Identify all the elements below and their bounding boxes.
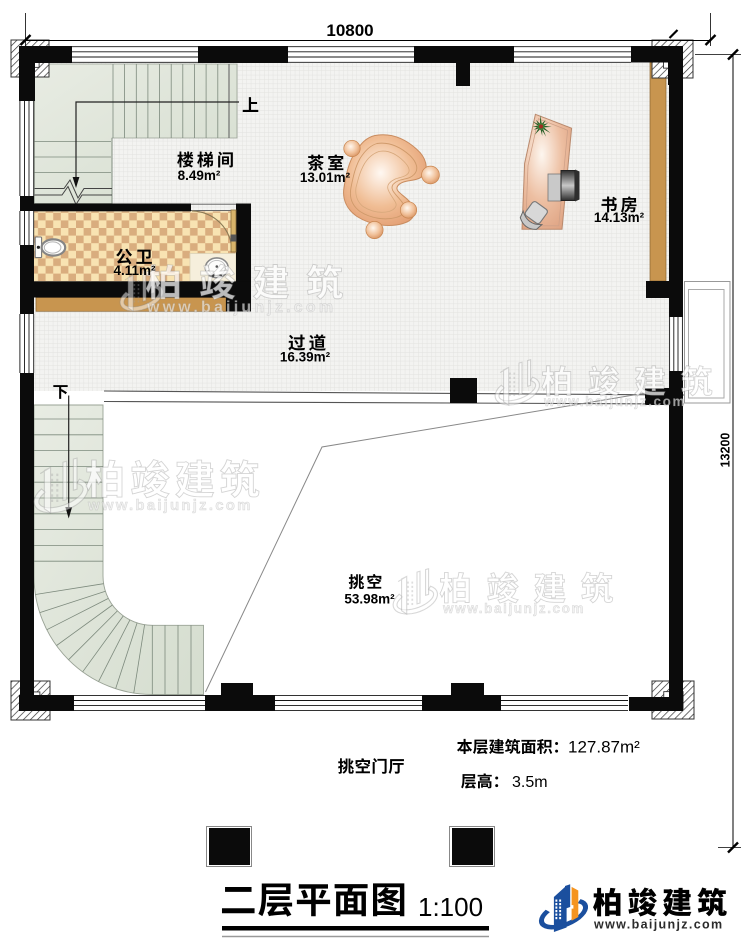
- svg-text:10800: 10800: [326, 21, 373, 40]
- svg-text:www.baijunjz.com: www.baijunjz.com: [87, 497, 253, 514]
- svg-text:13200: 13200: [719, 433, 733, 468]
- svg-text:3.5m: 3.5m: [512, 774, 548, 791]
- svg-text:8.49m²: 8.49m²: [178, 168, 221, 183]
- svg-text:13.01m²: 13.01m²: [300, 170, 351, 185]
- svg-text:14.13m²: 14.13m²: [594, 210, 645, 225]
- svg-text:www.baijunjz.com: www.baijunjz.com: [146, 299, 336, 316]
- svg-text:www.baijunjz.com: www.baijunjz.com: [593, 918, 723, 932]
- svg-text:www.baijunjz.com: www.baijunjz.com: [442, 601, 585, 616]
- svg-text:16.39m²: 16.39m²: [280, 350, 331, 365]
- svg-text:4.11m²: 4.11m²: [113, 263, 156, 278]
- svg-text:127.87m²: 127.87m²: [568, 738, 640, 757]
- svg-text:1:100: 1:100: [418, 892, 483, 922]
- svg-text:www.baijunjz.com: www.baijunjz.com: [543, 394, 686, 409]
- svg-text:53.98m²: 53.98m²: [344, 592, 395, 607]
